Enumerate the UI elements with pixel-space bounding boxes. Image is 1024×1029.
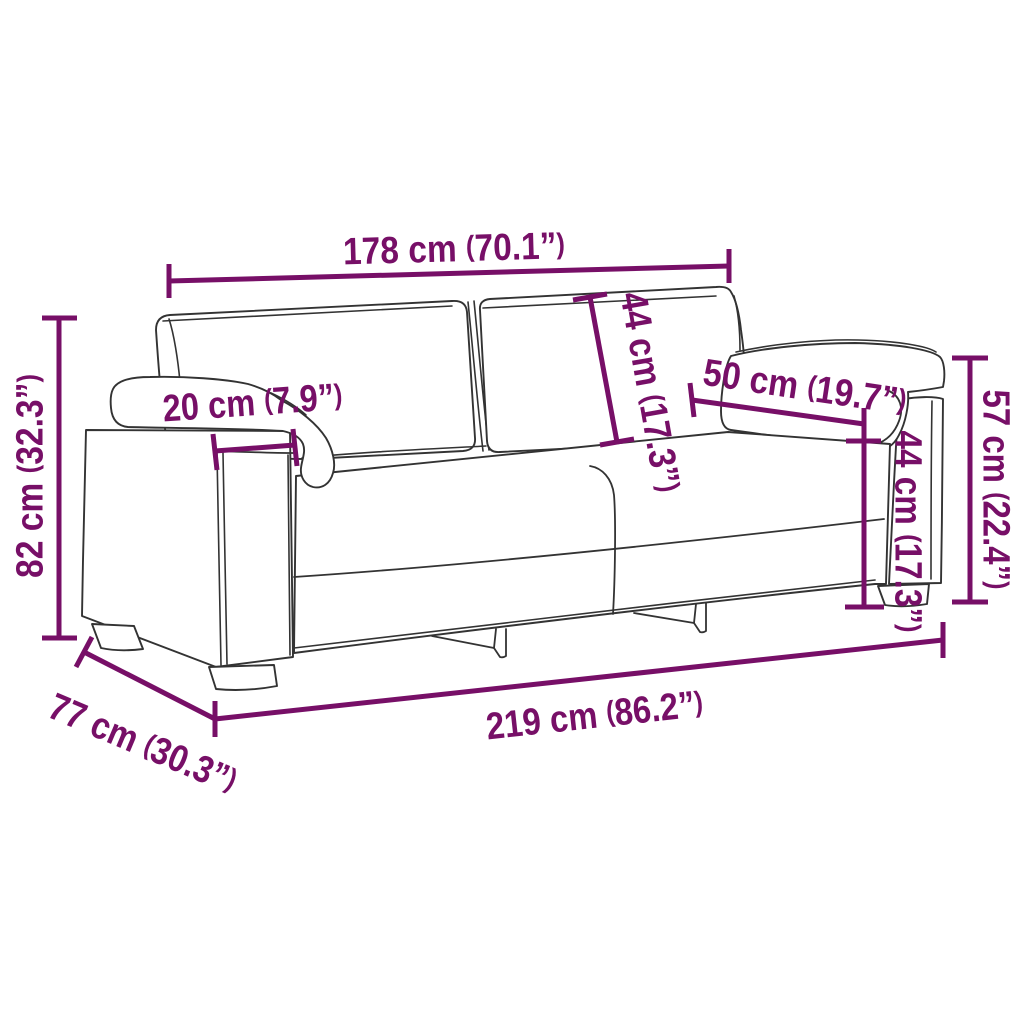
- svg-text:44 cm (17.3”): 44 cm (17.3”): [887, 431, 929, 633]
- svg-text:57 cm (22.4”): 57 cm (22.4”): [975, 390, 1017, 590]
- svg-text:178 cm (70.1”): 178 cm (70.1”): [342, 225, 565, 273]
- svg-text:82 cm (32.3”): 82 cm (32.3”): [9, 374, 51, 578]
